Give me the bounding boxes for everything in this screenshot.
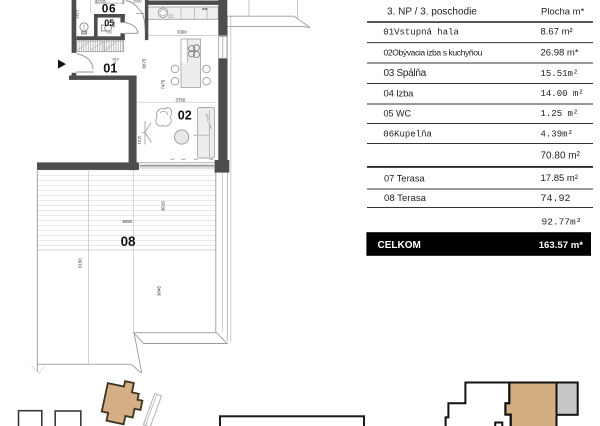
svg-text:05 WC: 05 WC <box>384 108 412 118</box>
svg-text:92.77m²: 92.77m² <box>542 216 582 227</box>
svg-text:1.25 m²: 1.25 m² <box>541 109 579 119</box>
svg-text:15.51m²: 15.51m² <box>541 69 579 79</box>
svg-text:70.80 m²: 70.80 m² <box>541 151 581 162</box>
svg-text:01Vstupná hala: 01Vstupná hala <box>383 28 459 38</box>
svg-text:02Obývacia izba s kuchyňou: 02Obývacia izba s kuchyňou <box>384 48 483 58</box>
svg-text:Ø: Ø <box>114 61 117 65</box>
svg-text:02: 02 <box>178 109 192 123</box>
svg-text:900: 900 <box>112 21 116 27</box>
svg-text:74.92: 74.92 <box>541 194 571 205</box>
svg-text:6675: 6675 <box>141 58 146 68</box>
svg-text:06: 06 <box>102 2 117 16</box>
svg-text:3045: 3045 <box>157 286 162 296</box>
svg-text:08: 08 <box>121 234 136 249</box>
svg-text:06Kupelňa: 06Kupelňa <box>383 129 432 139</box>
svg-text:3015: 3015 <box>161 201 166 211</box>
svg-text:7475: 7475 <box>161 79 166 89</box>
svg-text:6150: 6150 <box>78 258 83 268</box>
svg-text:26.98 m*: 26.98 m* <box>541 48 579 59</box>
svg-text:08 Terasa: 08 Terasa <box>384 193 427 204</box>
svg-text:2200: 2200 <box>97 0 107 4</box>
svg-text:163.57 m*: 163.57 m* <box>539 240 584 251</box>
svg-text:3. NP / 3. poschodie: 3. NP / 3. poschodie <box>387 7 477 18</box>
svg-text:1100: 1100 <box>133 0 142 4</box>
svg-text:CELKOM: CELKOM <box>378 240 421 251</box>
svg-text:3300: 3300 <box>177 30 187 35</box>
svg-text:3750: 3750 <box>176 97 186 102</box>
svg-text:4.39m²: 4.39m² <box>541 129 573 139</box>
svg-text:CS0: CS0 <box>106 31 112 35</box>
svg-text:14.00 m²: 14.00 m² <box>541 89 584 99</box>
svg-text:04 Izba: 04 Izba <box>384 88 415 99</box>
svg-text:5650: 5650 <box>123 219 133 224</box>
svg-text:17.85 m²: 17.85 m² <box>541 173 579 184</box>
svg-text:Plocha m*: Plocha m* <box>541 7 585 18</box>
svg-text:2415: 2415 <box>75 9 80 19</box>
svg-text:8.67 m²: 8.67 m² <box>541 27 573 38</box>
svg-text:07 Terasa: 07 Terasa <box>384 173 425 183</box>
svg-text:03 Spálňa: 03 Spálňa <box>384 68 427 79</box>
svg-text:1815: 1815 <box>136 135 141 145</box>
